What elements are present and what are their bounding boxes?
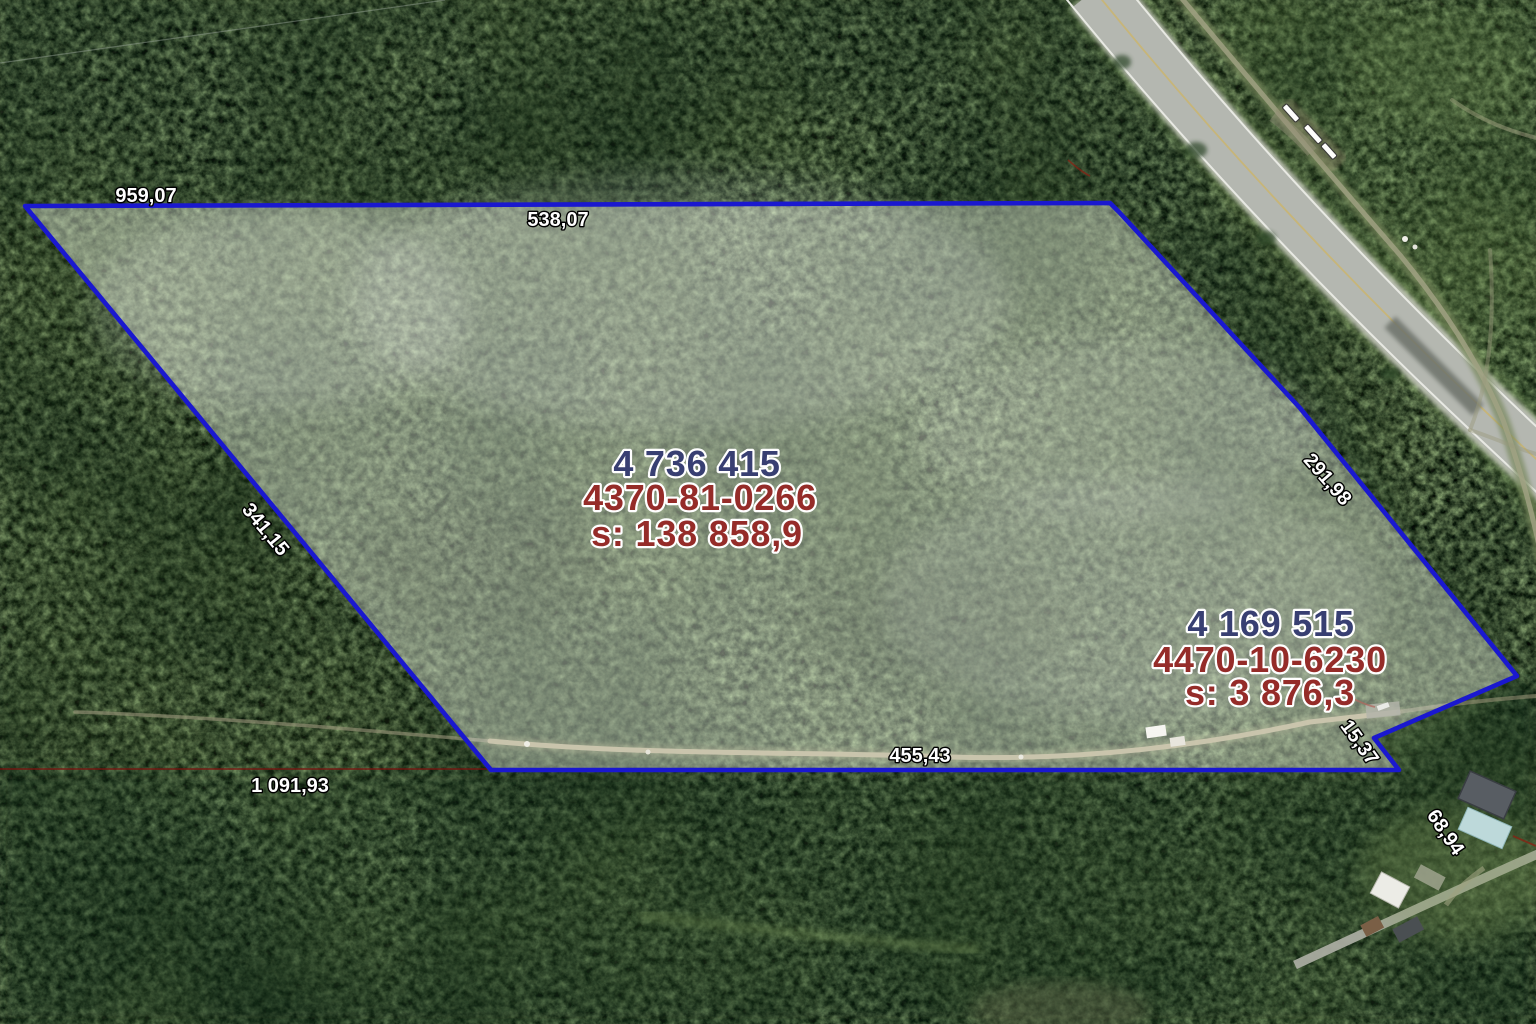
svg-text:4 169 515: 4 169 515 [1187,603,1354,644]
svg-text:455,43: 455,43 [889,745,950,767]
svg-text:959,07: 959,07 [115,185,176,207]
svg-text:4370-81-0266: 4370-81-0266 [583,477,817,518]
svg-text:s: 3 876,3: s: 3 876,3 [1185,672,1355,713]
svg-text:s: 138 858,9: s: 138 858,9 [591,513,803,554]
svg-text:538,07: 538,07 [527,209,588,231]
svg-text:1 091,93: 1 091,93 [251,775,329,797]
